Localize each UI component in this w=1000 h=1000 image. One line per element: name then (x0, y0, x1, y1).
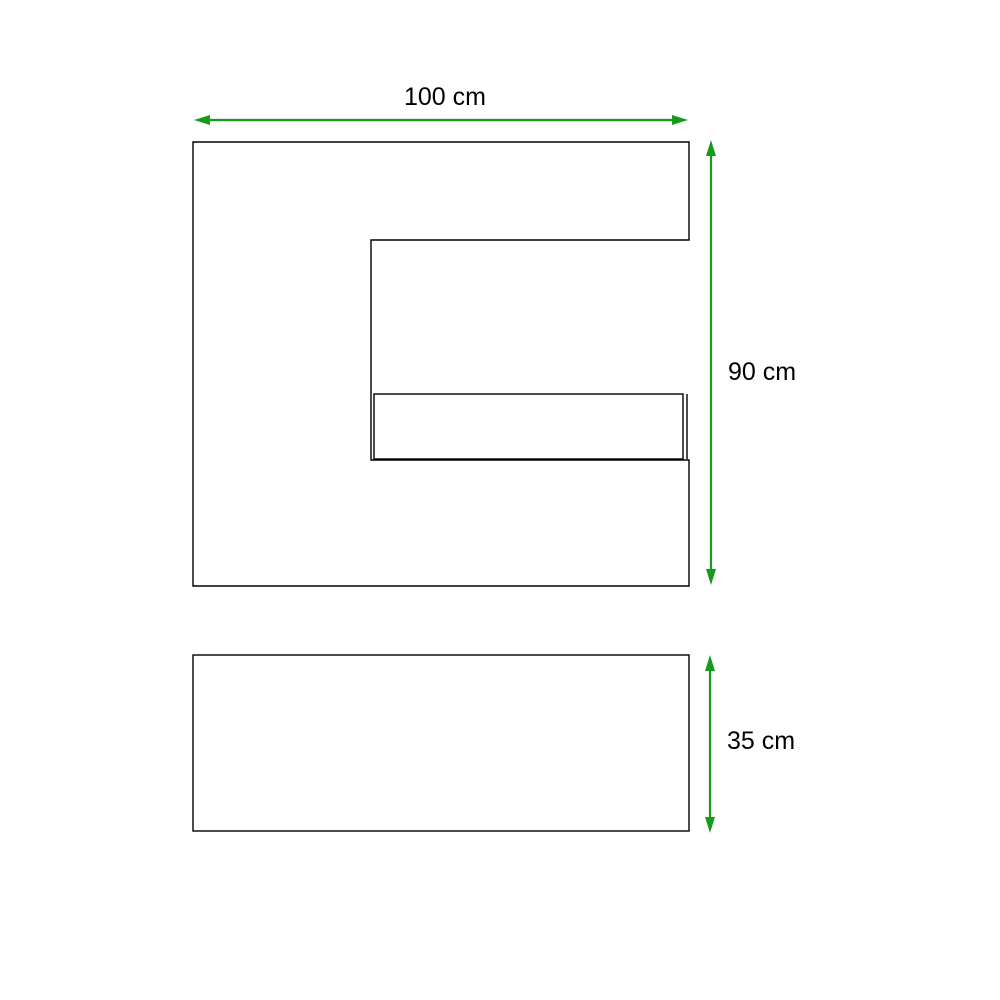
dimension-diagram: 100 cm 90 cm 35 cm (0, 0, 1000, 1000)
shelf-board (374, 394, 683, 459)
base-height-dimension-label: 35 cm (727, 728, 795, 754)
arrowhead-down-icon (706, 569, 716, 585)
arrowhead-up-icon (706, 140, 716, 156)
arrowhead-down-icon (705, 817, 715, 833)
cabinet-front-panel (193, 142, 689, 586)
base-panel (193, 655, 689, 831)
height-dimension-arrow (706, 140, 716, 585)
diagram-drawing (0, 0, 1000, 1000)
base-height-dimension-arrow (705, 655, 715, 833)
arrowhead-right-icon (672, 115, 688, 125)
height-dimension-label: 90 cm (728, 359, 796, 385)
width-dimension-label: 100 cm (404, 84, 486, 110)
arrowhead-left-icon (194, 115, 210, 125)
arrowhead-up-icon (705, 655, 715, 671)
width-dimension-arrow (194, 115, 688, 125)
